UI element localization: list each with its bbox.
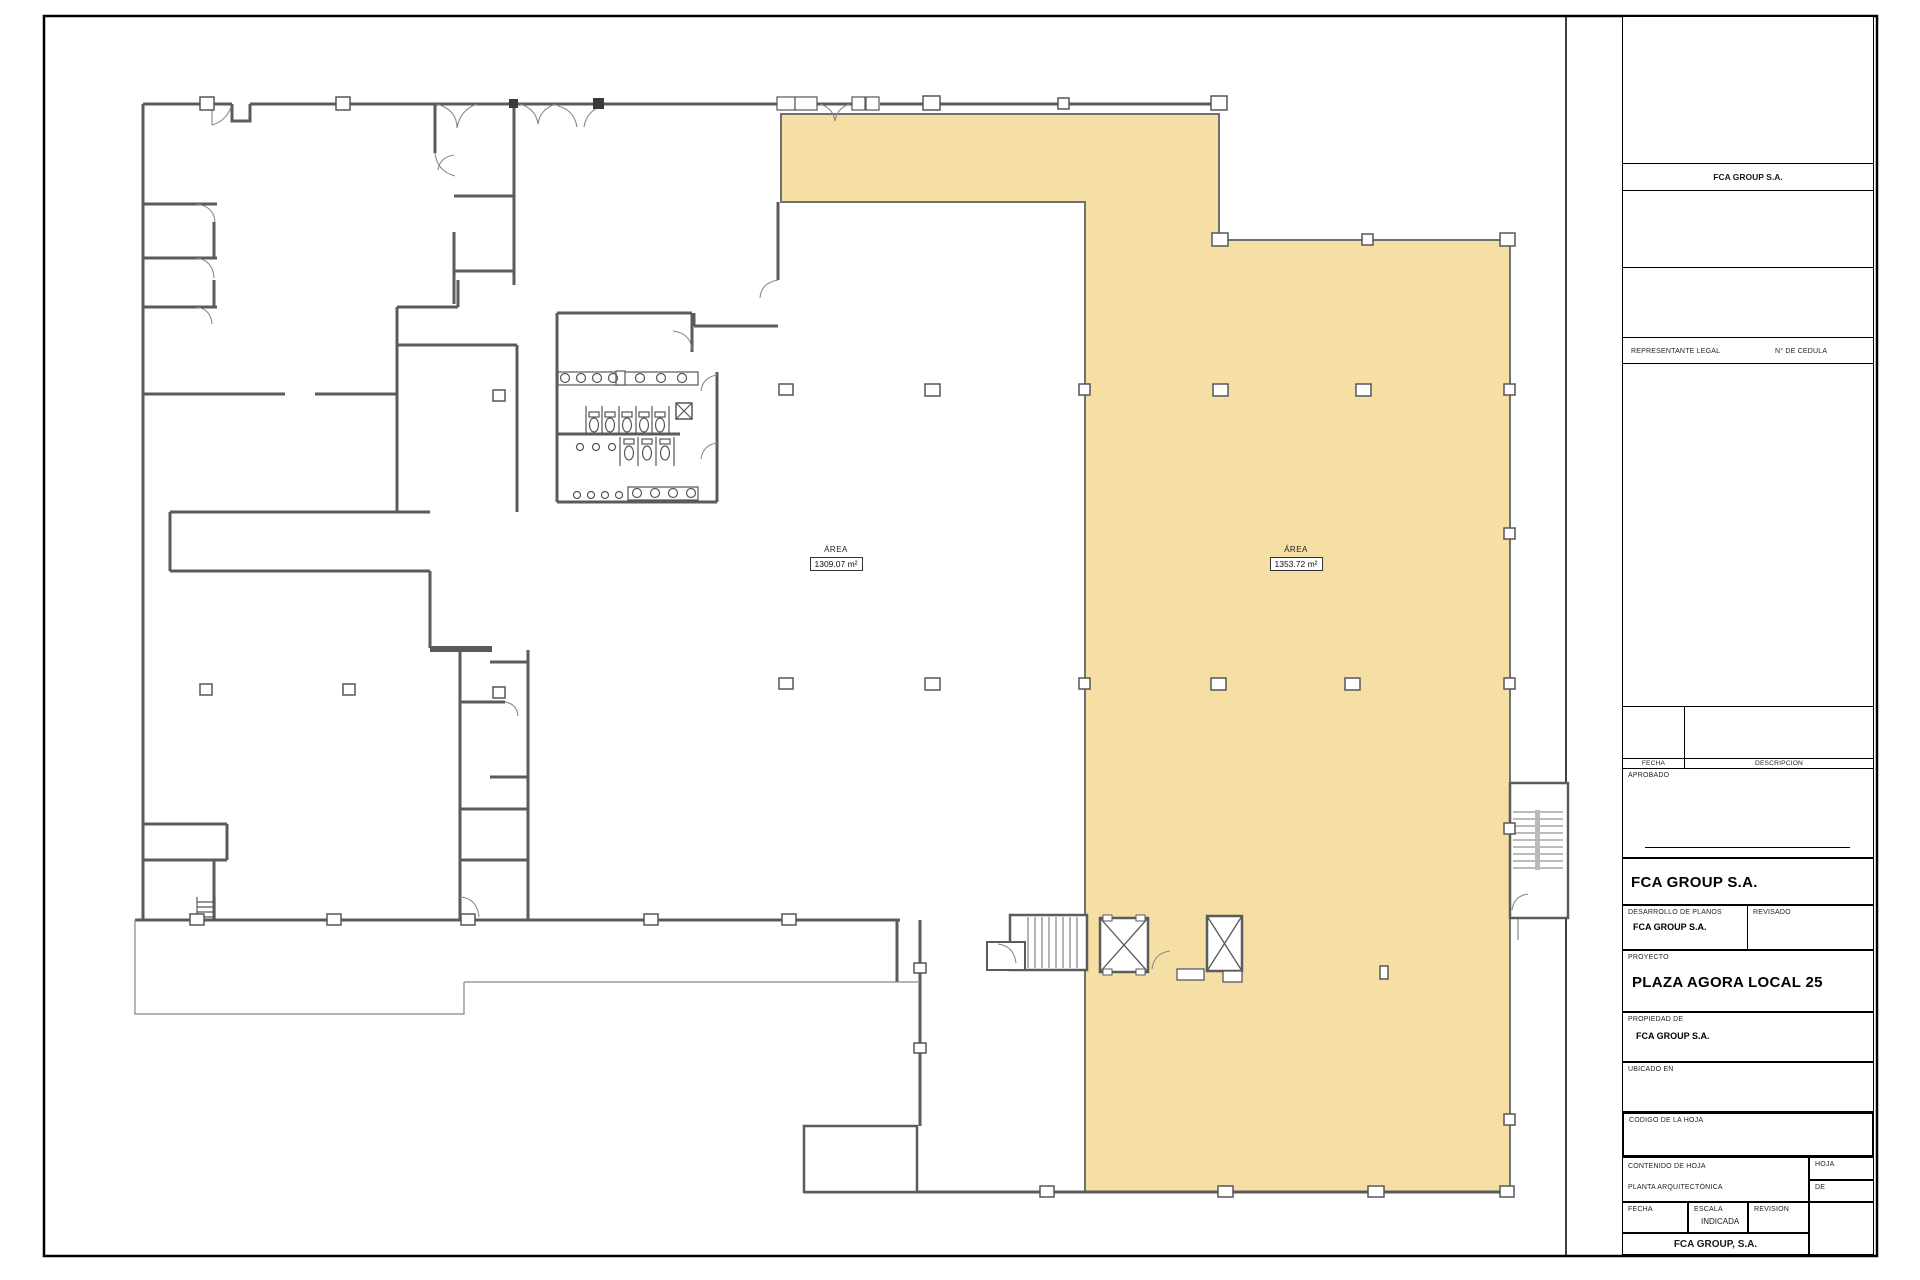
propiedad-label: PROPIEDAD DE [1628, 1016, 1683, 1024]
elevator-2 [1207, 916, 1242, 982]
area-title: ÁREA [800, 545, 872, 554]
descripcion-label: DESCRIPCION [1755, 760, 1803, 768]
area-value: 1309.07 m² [810, 557, 863, 571]
area-label-local-2: ÁREA 1353.72 m² [1260, 545, 1332, 572]
right-stair [1510, 783, 1568, 918]
tb-codigo: CODIGO DE LA HOJA [1622, 1112, 1874, 1157]
proyecto-label: PROYECTO [1628, 954, 1669, 962]
escala-label: ESCALA [1694, 1206, 1723, 1214]
tb-revisado: REVISADO [1747, 905, 1874, 950]
company-header-text: FCA GROUP S.A. [1713, 172, 1782, 182]
tb-aprobado: APROBADO DIRECTOR DE OBRAS Y CONSTRUCCIO… [1622, 768, 1874, 859]
codigo-label: CODIGO DE LA HOJA [1629, 1117, 1703, 1125]
desarrollo-label: DESARROLLO DE PLANOS [1628, 909, 1722, 917]
revisado-label: REVISADO [1753, 909, 1791, 917]
tb-footer-company: FCA GROUP, S.A. [1622, 1233, 1809, 1255]
tb-contenido: CONTENIDO DE HOJA PLANTA ARQUITECTÓNICA [1622, 1157, 1809, 1202]
tb-desarrollo: DESARROLLO DE PLANOS FCA GROUP S.A. [1622, 905, 1748, 950]
tb-descripcion-cell [1684, 706, 1874, 759]
legal-rep-label: REPRESENTANTE LEGAL [1631, 348, 1720, 356]
tb-de: DE [1809, 1180, 1874, 1202]
tb-company-header: FCA GROUP S.A. [1622, 163, 1874, 191]
de-label: DE [1815, 1184, 1825, 1192]
revision-label: REVISION [1754, 1206, 1789, 1214]
tb-corner-empty [1809, 1202, 1874, 1255]
elevator-1 [1100, 915, 1148, 975]
tb-legal-row: REPRESENTANTE LEGAL N° DE CEDULA [1622, 337, 1874, 364]
drawing-sheet: ÁREA 1309.07 m² ÁREA 1353.72 m² FCA GROU… [0, 0, 1920, 1280]
contenido-value: PLANTA ARQUITECTÓNICA [1628, 1184, 1723, 1192]
tb-revision: REVISION [1748, 1202, 1809, 1233]
proyecto-value: PLAZA AGORA LOCAL 25 [1632, 974, 1823, 991]
tb-fecha2: FECHA [1622, 1202, 1688, 1233]
tb-empty-2 [1622, 190, 1874, 268]
desarrollo-value: FCA GROUP S.A. [1633, 922, 1707, 932]
area-value: 1353.72 m² [1270, 557, 1323, 571]
aprobado-label: APROBADO [1628, 772, 1669, 780]
area-label-local-1: ÁREA 1309.07 m² [800, 545, 872, 572]
tb-proyecto: PROYECTO PLAZA AGORA LOCAL 25 [1622, 950, 1874, 1012]
fecha-label: FECHA [1642, 760, 1665, 768]
tb-signature-area [1622, 363, 1874, 707]
area-title: ÁREA [1260, 545, 1332, 554]
cedula-label: N° DE CEDULA [1775, 348, 1827, 356]
highlighted-local-area [781, 114, 1510, 1192]
tb-propiedad: PROPIEDAD DE FCA GROUP S.A. [1622, 1012, 1874, 1062]
tb-ubicado: UBICADO EN [1622, 1062, 1874, 1112]
propiedad-value: FCA GROUP S.A. [1636, 1031, 1710, 1041]
fecha2-label: FECHA [1628, 1206, 1653, 1214]
company-name-text: FCA GROUP S.A. [1631, 874, 1758, 891]
toilet-icons [624, 439, 670, 460]
tb-hoja: HOJA [1809, 1157, 1874, 1180]
tb-escala: ESCALA INDICADA [1688, 1202, 1748, 1233]
escala-value: INDICADA [1701, 1217, 1739, 1226]
tb-company-name: FCA GROUP S.A. [1622, 858, 1874, 905]
footer-company-text: FCA GROUP, S.A. [1674, 1239, 1757, 1250]
urinal-icons [589, 412, 665, 432]
shaft-icon [676, 403, 692, 419]
tb-empty-top [1622, 16, 1874, 164]
signature-line [1645, 847, 1850, 848]
ubicado-label: UBICADO EN [1628, 1066, 1674, 1074]
contenido-label: CONTENIDO DE HOJA [1628, 1163, 1706, 1171]
tb-fecha-cell [1622, 706, 1685, 759]
hoja-label: HOJA [1815, 1161, 1834, 1169]
service-room [804, 1126, 917, 1192]
tb-empty-3 [1622, 267, 1874, 338]
